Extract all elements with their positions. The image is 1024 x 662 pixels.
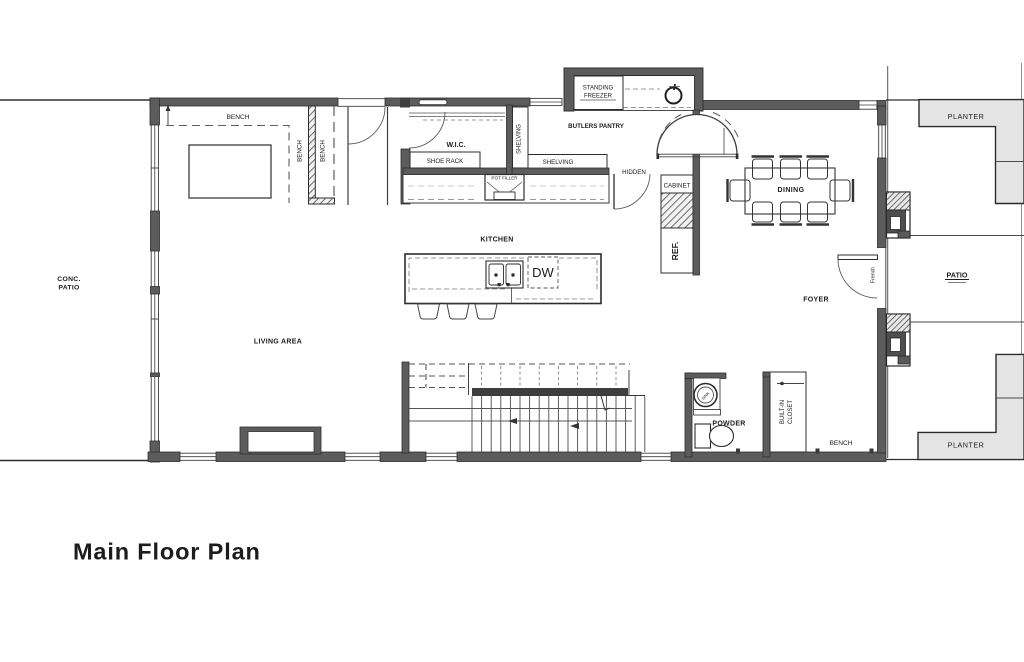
svg-text:BENCH: BENCH	[829, 440, 852, 447]
svg-text:FOYER: FOYER	[803, 297, 829, 304]
svg-text:French: French	[871, 267, 877, 283]
svg-text:W.I.C.: W.I.C.	[446, 142, 465, 149]
svg-text:SHOE RACK: SHOE RACK	[427, 158, 464, 165]
svg-text:CLOSET: CLOSET	[788, 400, 794, 424]
svg-text:SHELVING: SHELVING	[543, 159, 574, 166]
svg-text:REF.: REF.	[670, 242, 680, 261]
svg-text:FREEZER: FREEZER	[584, 94, 613, 100]
svg-text:BENCH: BENCH	[320, 140, 327, 162]
svg-text:SHELVING: SHELVING	[517, 124, 523, 154]
svg-text:CABINET: CABINET	[664, 183, 691, 190]
svg-text:DW: DW	[532, 265, 554, 280]
svg-text:LIVING AREA: LIVING AREA	[254, 339, 302, 346]
svg-text:Main Floor Plan: Main Floor Plan	[73, 539, 261, 565]
svg-text:PATIO: PATIO	[947, 271, 968, 280]
svg-text:PLANTER: PLANTER	[948, 441, 985, 450]
svg-text:POT FILLER: POT FILLER	[491, 176, 518, 181]
svg-text:HIDDEN: HIDDEN	[622, 169, 646, 176]
svg-text:PATIO: PATIO	[58, 285, 79, 292]
svg-text:DINING: DINING	[778, 187, 805, 194]
svg-text:KITCHEN: KITCHEN	[480, 237, 513, 244]
svg-text:BENCH: BENCH	[297, 140, 304, 162]
svg-text:PLANTER: PLANTER	[948, 112, 985, 121]
svg-text:STANDING: STANDING	[583, 86, 614, 92]
svg-text:POWDER: POWDER	[712, 421, 745, 428]
svg-text:BUILT-IN: BUILT-IN	[780, 400, 786, 424]
svg-text:BENCH: BENCH	[226, 114, 249, 121]
svg-text:BUTLERS PANTRY: BUTLERS PANTRY	[568, 123, 625, 130]
svg-text:CONC.: CONC.	[57, 276, 80, 283]
